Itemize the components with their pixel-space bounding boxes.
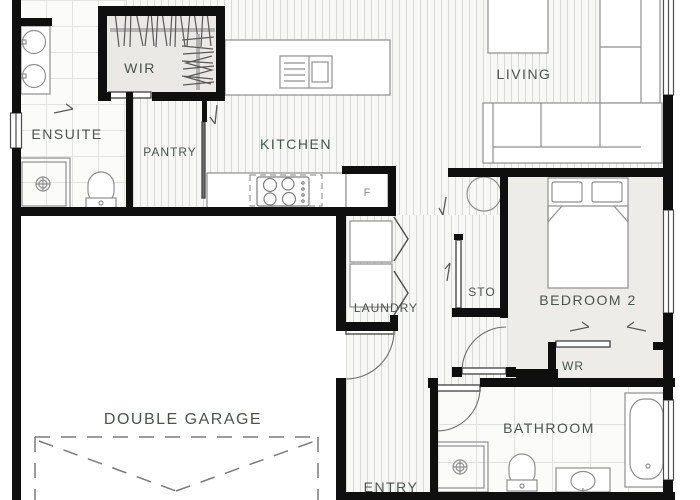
arrow-icon xyxy=(445,263,450,281)
room-label-bathroom: BATHROOM xyxy=(503,420,595,436)
room-label-wr: WR xyxy=(562,359,584,373)
sto-sliding-door xyxy=(456,240,461,308)
arrow-icon xyxy=(54,104,73,113)
bedroom2-door xyxy=(462,327,506,374)
bedroom-window xyxy=(664,210,674,313)
drain-icon xyxy=(453,460,467,474)
rug xyxy=(488,0,548,53)
room-label-pantry: PANTRY xyxy=(143,145,197,159)
bathroom-shower xyxy=(433,442,488,492)
ensuite-toilet xyxy=(86,172,116,208)
bathroom-vanity xyxy=(556,468,610,492)
room-label-living: LIVING xyxy=(497,66,552,82)
wr-sliding-door xyxy=(556,341,610,347)
living-window xyxy=(664,0,674,95)
room-label-laundry: LAUNDRY xyxy=(354,301,418,315)
room-label-ensuite: ENSUITE xyxy=(31,126,102,142)
drain-icon xyxy=(36,177,50,191)
laundry-appliances xyxy=(350,221,392,307)
room-label-kitchen: KITCHEN xyxy=(260,136,332,152)
island-bench xyxy=(225,40,390,95)
ensuite-shower xyxy=(18,158,70,210)
washer xyxy=(350,221,392,262)
bathtub xyxy=(625,393,668,487)
pillow xyxy=(592,182,622,202)
garage-entry-door xyxy=(346,328,394,379)
room-label-garage: DOUBLE GARAGE xyxy=(104,411,262,429)
bed xyxy=(548,178,628,288)
room-label-entry: ENTRY xyxy=(364,479,419,495)
bathroom-toilet xyxy=(507,454,537,491)
garage-door-outline xyxy=(35,437,318,500)
kitchen-bench xyxy=(207,173,346,208)
floor-plan: WIR ENSUITE PANTRY KITCHEN LIVING BEDROO… xyxy=(0,0,700,500)
hot-water-unit xyxy=(467,177,501,211)
fridge-label: F xyxy=(364,187,371,199)
arrow-icon xyxy=(210,105,217,124)
pantry-door xyxy=(202,122,205,198)
ensuite-vanity xyxy=(21,26,50,94)
room-label-wir: WIR xyxy=(124,60,156,76)
room-label-sto: STO xyxy=(468,285,495,299)
arrow-icon xyxy=(570,322,589,331)
ensuite-window xyxy=(11,113,22,148)
bathroom-door xyxy=(437,385,480,431)
bathroom-window xyxy=(664,400,674,480)
arrow-icon xyxy=(627,322,646,331)
pillow xyxy=(552,182,582,202)
arrow-icon xyxy=(439,197,446,215)
room-label-bedroom2: BEDROOM 2 xyxy=(539,292,637,308)
